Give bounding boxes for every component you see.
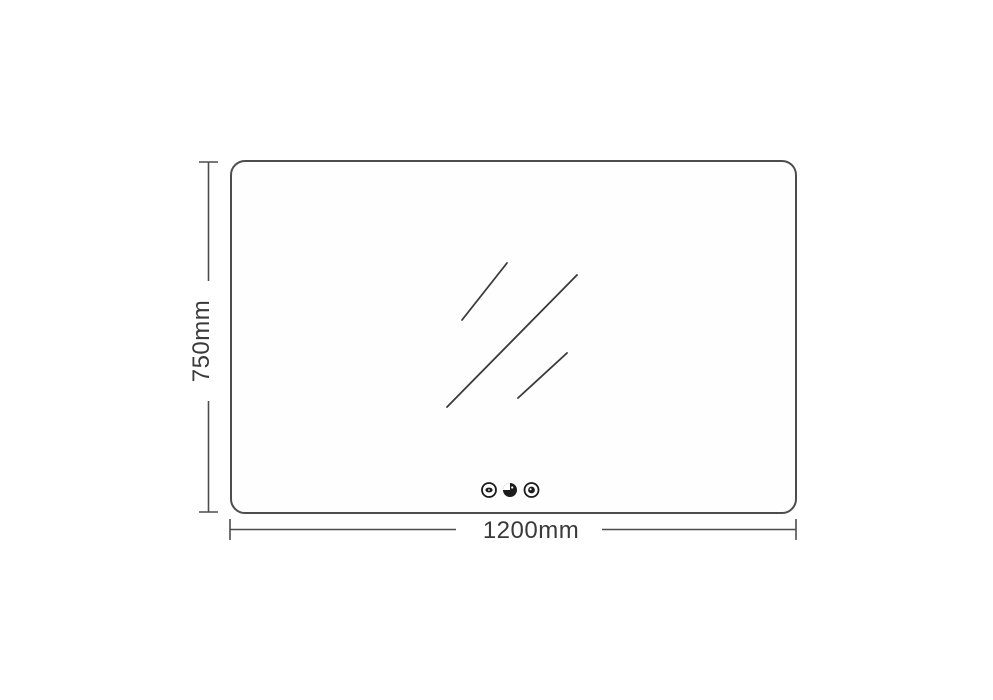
- power-icon: [525, 483, 539, 497]
- brightness-icon: [503, 483, 517, 497]
- defogger-icon: [482, 483, 496, 497]
- mirror-dimension-diagram: 750mm 1200mm: [0, 0, 993, 700]
- diagram-svg: 750mm 1200mm: [0, 0, 993, 700]
- touch-buttons: [482, 483, 539, 497]
- width-dimension-label: 1200mm: [483, 517, 579, 544]
- mirror-outline: [231, 161, 796, 513]
- height-dimension-label: 750mm: [188, 300, 215, 383]
